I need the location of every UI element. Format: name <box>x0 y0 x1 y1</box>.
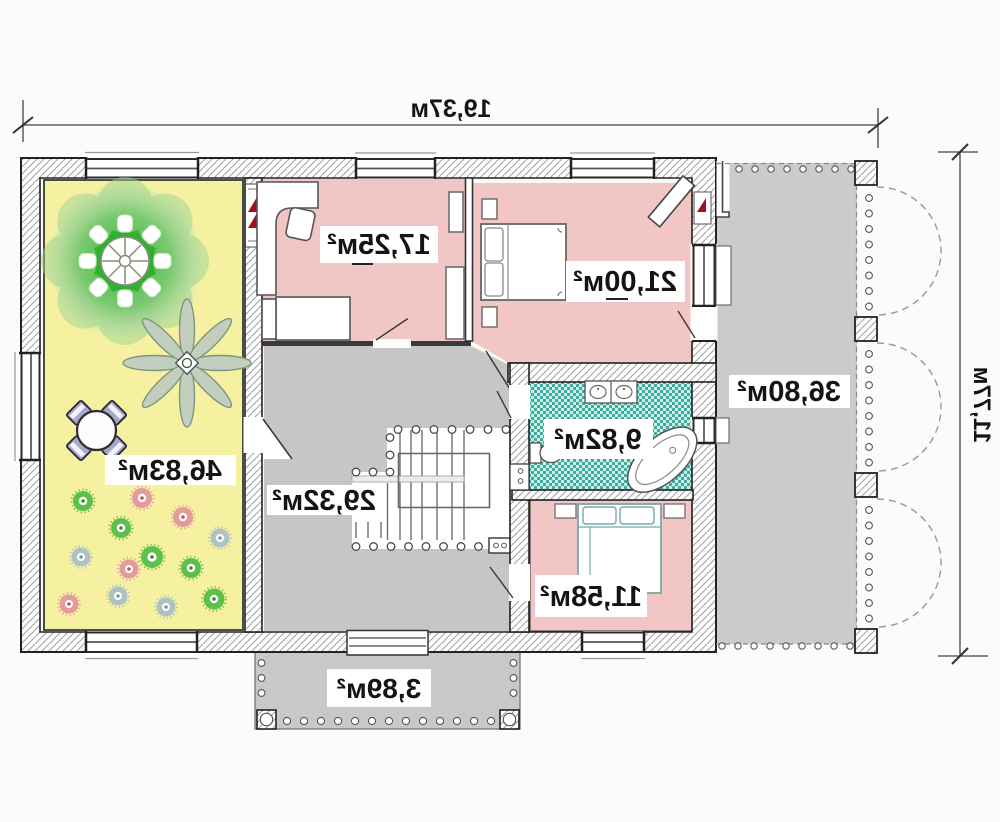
svg-text:3,89м²: 3,89м² <box>337 673 422 704</box>
svg-text:19,37м: 19,37м <box>410 95 491 123</box>
svg-text:11,58м²: 11,58м² <box>540 581 642 613</box>
svg-text:29,32м²: 29,32м² <box>272 485 376 517</box>
svg-text:11,77м: 11,77м <box>968 367 995 444</box>
svg-text:17,25м²: 17,25м² <box>327 229 431 261</box>
svg-text:46,83м²: 46,83м² <box>118 455 222 487</box>
svg-text:21,00м²: 21,00м² <box>573 266 677 298</box>
svg-text:36,80м²: 36,80м² <box>737 376 841 408</box>
svg-text:9,82м²: 9,82м² <box>554 424 642 456</box>
